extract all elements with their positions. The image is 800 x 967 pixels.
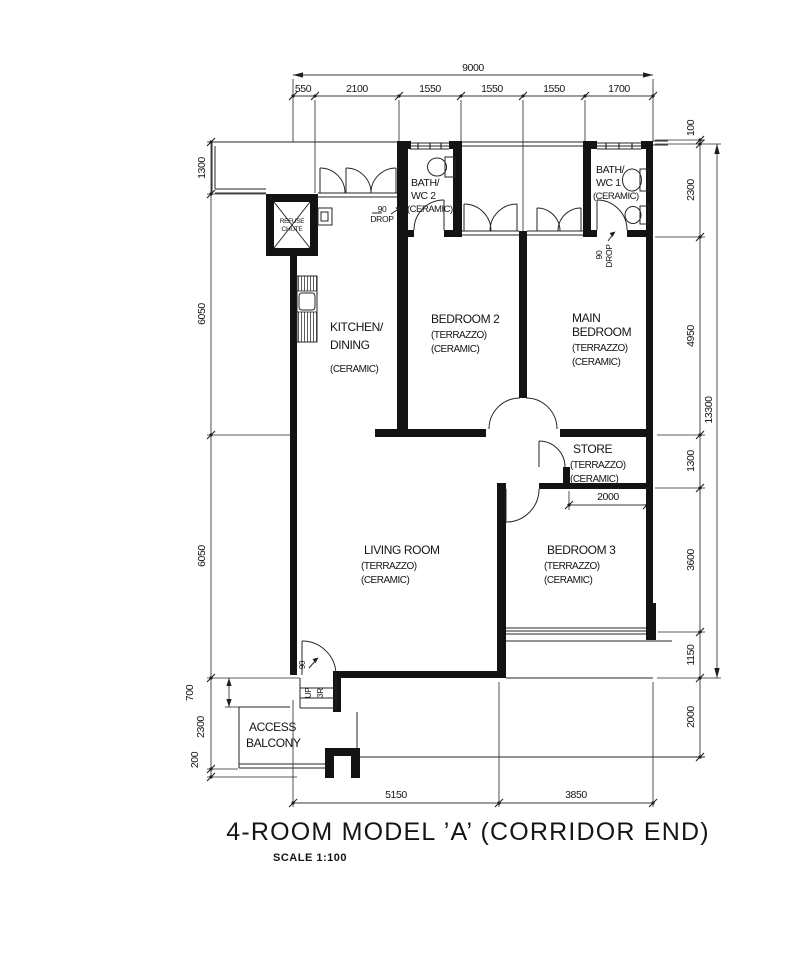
main-bedroom-label-1: MAIN [572, 311, 600, 325]
wall-south [336, 671, 506, 678]
main-bedroom-label-2: BEDROOM [572, 325, 632, 339]
bedroom2-finish-2: (CERAMIC) [431, 344, 479, 355]
drop1-word: DROP [604, 244, 614, 268]
dim-1300-r: 1300 [685, 450, 697, 472]
wall-bath1-top-east [641, 141, 653, 149]
drop2-word: DROP [370, 214, 394, 224]
dim-550: 550 [295, 83, 312, 95]
dim-5150: 5150 [385, 789, 407, 801]
dim-3600: 3600 [685, 549, 697, 571]
balcony-label-1: ACCESS [249, 720, 296, 734]
dimension-right: 100 2300 4950 1300 3600 1150 2000 13300 [655, 119, 721, 761]
steps-drop-label: 90 [298, 660, 307, 669]
dim-4950: 4950 [685, 325, 697, 347]
drop1-value: 90 [594, 250, 604, 259]
living-finish-1: (TERRAZZO) [361, 561, 417, 572]
dimension-bottom: 5150 3850 [289, 682, 657, 807]
room-bedroom3: BEDROOM 3 (TERRAZZO) (CERAMIC) [544, 543, 616, 586]
window-main-bedroom [537, 208, 581, 231]
annotations: 90 DROP 90 DROP UP 3R 90 [298, 204, 616, 698]
title-block: 4-ROOM MODEL ’A’ (CORRIDOR END) SCALE 1:… [226, 818, 710, 864]
dim-13300: 13300 [703, 396, 715, 424]
wall-corridor-west [375, 429, 486, 437]
door-bath1 [597, 200, 627, 230]
door-entrance [302, 641, 336, 675]
kitchen-sink-counter [297, 276, 317, 342]
dim-2300-r: 2300 [685, 179, 697, 201]
floor-plan-drawing: 9000 550 2100 1550 1550 1550 1700 [0, 0, 800, 967]
bath1-label-1: BATH/ [596, 164, 625, 176]
wall-bath2-top-east [449, 141, 462, 149]
dim-1550-c: 1550 [543, 83, 565, 95]
dim-9000: 9000 [462, 62, 484, 74]
refuse-chute-label-1: REFUSE [280, 218, 306, 225]
room-main-bedroom: MAIN BEDROOM (TERRAZZO) (CERAMIC) [572, 311, 632, 368]
doors-windows [302, 168, 627, 675]
wall-bath2-top-west [397, 141, 411, 149]
bedroom3-finish-2: (CERAMIC) [544, 575, 592, 586]
dim-2000-r: 2000 [685, 706, 697, 728]
store-finish-2: (CERAMIC) [570, 474, 618, 485]
kitchen-label-1: KITCHEN/ [330, 320, 384, 334]
door-store [539, 441, 565, 467]
living-label: LIVING ROOM [364, 543, 440, 557]
drawing-title: 4-ROOM MODEL ’A’ (CORRIDOR END) [226, 818, 710, 846]
room-bath2: BATH/ WC 2 (CERAMIC) [407, 177, 453, 215]
dim-1300-l: 1300 [196, 157, 208, 179]
refuse-chute-label-2: CHUTE [282, 226, 304, 233]
wall-bath1-west [583, 141, 591, 237]
wall-bath2-east [453, 141, 462, 237]
door-main-bedroom [526, 398, 557, 429]
dim-2300-l: 2300 [195, 716, 207, 738]
bedroom2-label: BEDROOM 2 [431, 312, 500, 326]
bedroom2-finish-1: (TERRAZZO) [431, 330, 487, 341]
dim-2000-store: 2000 [597, 491, 619, 503]
dim-700: 700 [184, 684, 196, 701]
wall-bath1-bottom-west [583, 230, 597, 237]
wall-kitchen-bedroom2 [397, 141, 408, 437]
kitchen-label-2: DINING [330, 338, 370, 352]
bath2-label-2: WC 2 [411, 190, 436, 202]
wall-bath2-bottom-east [444, 230, 462, 237]
drop-note-bath1: 90 DROP [594, 232, 616, 268]
dimension-store-width: 2000 [565, 491, 651, 510]
dim-6050-a: 6050 [196, 303, 208, 325]
wall-west-exterior [290, 196, 297, 675]
wall-bath1-top-west [583, 141, 597, 149]
room-bath1: BATH/ WC 1 (CERAMIC) [593, 164, 639, 202]
wall-bedroom3-west [497, 483, 506, 678]
wall-bath2-bottom-west [397, 230, 414, 237]
wall-east-pier [646, 603, 656, 640]
dim-6050-b: 6050 [196, 545, 208, 567]
dim-1700: 1700 [608, 83, 630, 95]
dim-200: 200 [189, 751, 201, 768]
dim-1550-b: 1550 [481, 83, 503, 95]
door-bedroom2 [489, 398, 520, 429]
steps-risers-label: 3R [316, 688, 325, 698]
door-bedroom3 [506, 489, 539, 522]
refuse-chute: REFUSE CHUTE [266, 194, 332, 256]
dim-1150: 1150 [685, 644, 697, 666]
bedroom3-label: BEDROOM 3 [547, 543, 616, 557]
basin-bath1 [625, 206, 649, 224]
wall-bath1-bottom-east [627, 230, 653, 237]
dim-3850: 3850 [565, 789, 587, 801]
kitchen-finish: (CERAMIC) [330, 364, 378, 375]
bath1-finish: (CERAMIC) [593, 191, 639, 202]
main-bedroom-finish-1: (TERRAZZO) [572, 343, 628, 354]
balcony-label-2: BALCONY [246, 736, 301, 750]
room-living: LIVING ROOM (TERRAZZO) (CERAMIC) [361, 543, 440, 586]
drawing-scale: SCALE 1:100 [273, 852, 347, 864]
room-kitchen: KITCHEN/ DINING (CERAMIC) [330, 320, 384, 375]
toilet-bath2 [428, 157, 456, 177]
steps-up-label: UP [304, 688, 313, 699]
main-bedroom-finish-2: (CERAMIC) [572, 357, 620, 368]
room-bedroom2: BEDROOM 2 (TERRAZZO) (CERAMIC) [431, 312, 500, 355]
window-kitchen [320, 168, 396, 193]
entrance-steps-note: UP 3R 90 [298, 658, 325, 699]
store-finish-1: (TERRAZZO) [570, 460, 626, 471]
toilet-bath1 [623, 169, 650, 191]
bath1-label-2: WC 1 [596, 177, 621, 189]
living-finish-2: (CERAMIC) [361, 575, 409, 586]
dim-1550-a: 1550 [419, 83, 441, 95]
bedroom3-finish-1: (TERRAZZO) [544, 561, 600, 572]
bath2-label-1: BATH/ [411, 177, 440, 189]
dim-2100: 2100 [346, 83, 368, 95]
wall-balcony-east [333, 671, 341, 712]
walls [290, 141, 656, 712]
balcony-column [325, 748, 360, 778]
bath2-finish: (CERAMIC) [407, 204, 453, 215]
room-store: STORE (TERRAZZO) (CERAMIC) [570, 442, 626, 485]
wall-corridor-east [560, 429, 653, 437]
window-bedroom2 [464, 204, 517, 231]
dim-100: 100 [685, 119, 697, 136]
wall-bedroom2-main [519, 231, 527, 398]
store-label: STORE [573, 442, 613, 456]
